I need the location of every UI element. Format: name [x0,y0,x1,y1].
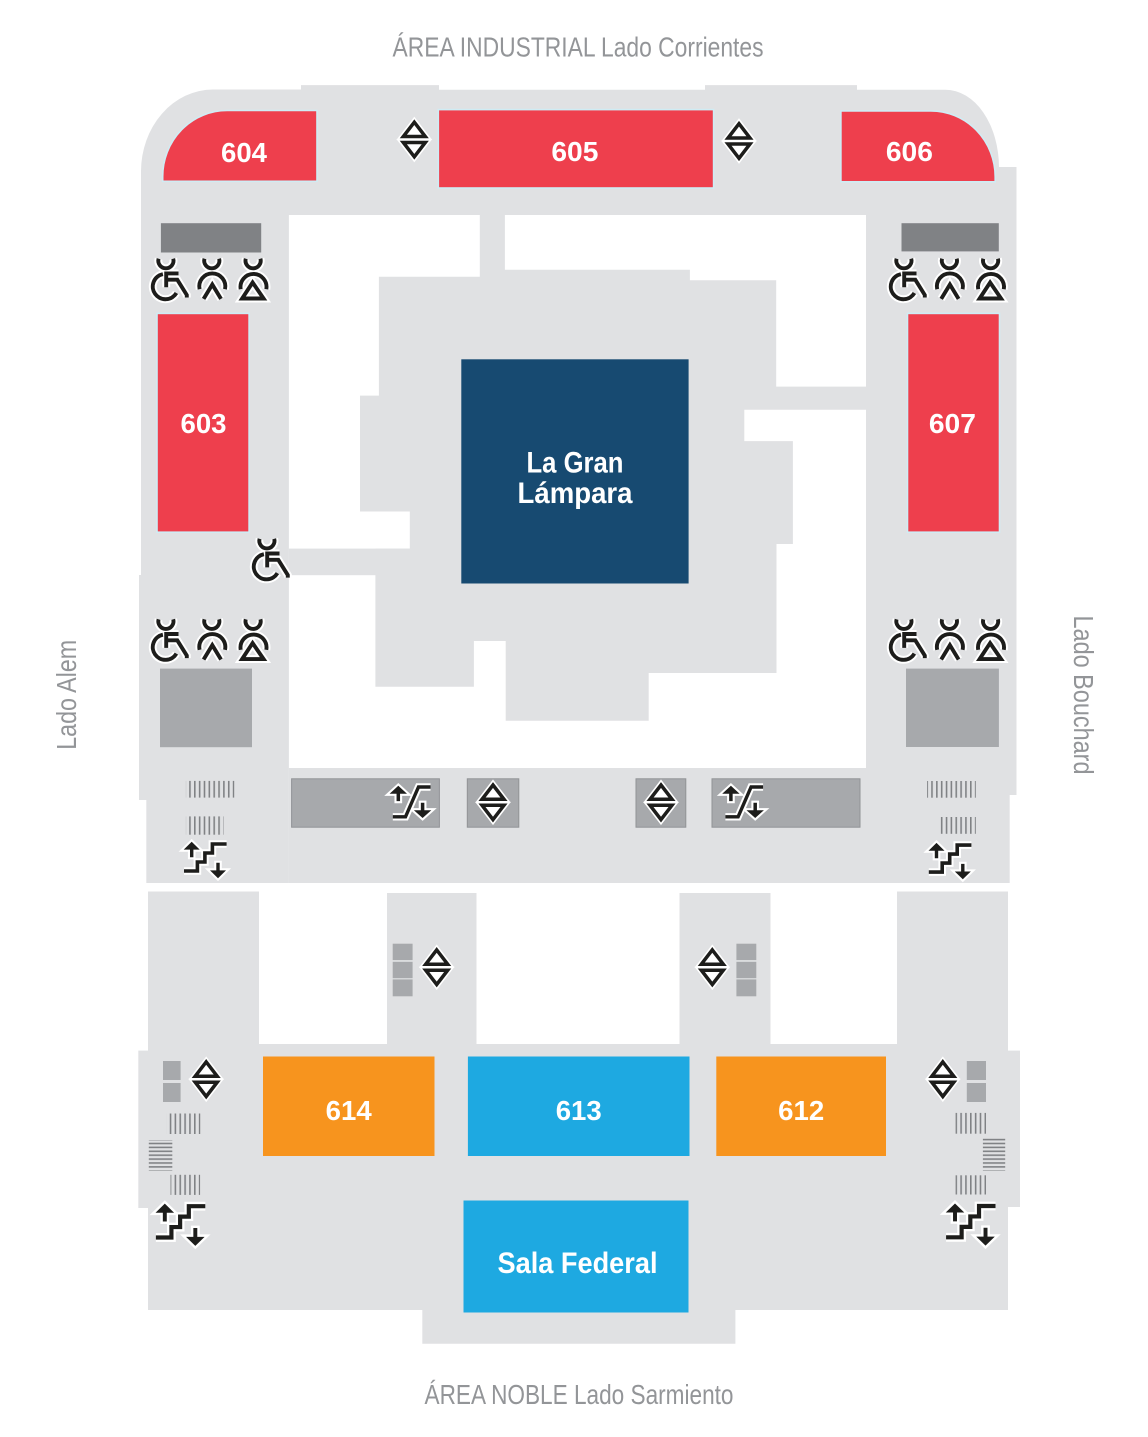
svg-text:603: 603 [181,408,227,439]
svg-text:ÁREA NOBLE Lado Sarmiento: ÁREA NOBLE Lado Sarmiento [425,1379,734,1410]
svg-text:606: 606 [886,136,933,167]
svg-text:605: 605 [551,136,598,167]
svg-text:Sala Federal: Sala Federal [498,1247,658,1280]
svg-text:607: 607 [929,408,976,439]
svg-text:La Gran: La Gran [527,447,624,480]
svg-text:ÁREA INDUSTRIAL Lado Corriente: ÁREA INDUSTRIAL Lado Corrientes [393,32,764,63]
svg-text:604: 604 [221,137,268,168]
svg-text:614: 614 [326,1095,373,1126]
svg-text:613: 613 [556,1095,602,1126]
svg-text:Lámpara: Lámpara [518,477,633,510]
svg-text:Lado Alem: Lado Alem [51,640,82,750]
svg-text:Lado Bouchard: Lado Bouchard [1068,616,1099,775]
svg-text:612: 612 [778,1095,824,1126]
